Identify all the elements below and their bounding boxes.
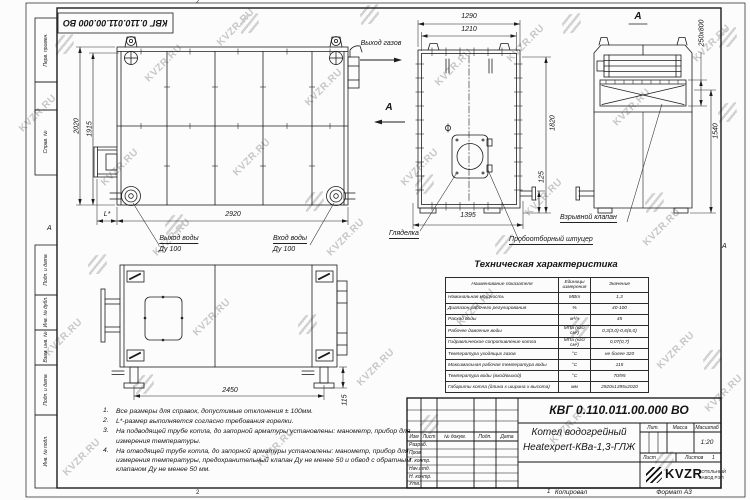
- label-explosion-valve: Взрывной клапан: [560, 214, 617, 223]
- dim-front-width-outer: 1290: [461, 13, 477, 20]
- tech-col-value: Значение: [591, 278, 649, 293]
- tech-table-row: Рабочее давление водыМПа (кгс/см²)0,3(3,…: [446, 326, 649, 338]
- tech-cell-name: Гидравлическое сопротивление котла: [446, 337, 559, 349]
- tech-cell-name: Расход воды: [446, 315, 559, 326]
- company-logo-icon: [646, 467, 662, 483]
- doc-number-main: КВГ 0.110.011.00.000 ВО: [549, 403, 688, 417]
- view-direction-arrow-label: А: [385, 102, 392, 113]
- tech-table-row: Габариты котла (длина х ширина х высота)…: [446, 382, 649, 393]
- note-number: 3.: [103, 427, 116, 445]
- label-water-outlet-dn: Ду 100: [159, 246, 181, 253]
- tech-table-row: Расход водым³/ч45: [446, 315, 649, 326]
- stamp-row-razrab: Разраб.: [409, 442, 427, 448]
- tech-cell-value: 0,3(3,0)-0,6(6,0): [591, 326, 649, 338]
- sheets-value: 1: [712, 455, 715, 461]
- label-sampling-fitting: Пробоотборный штуцер: [509, 236, 593, 245]
- dim-front-depth: 1395: [460, 212, 476, 219]
- company-desc-line1: КОТЕЛЬНЫЙ: [699, 469, 726, 474]
- note-number: 4.: [103, 447, 116, 475]
- label-water-inlet: Вход воды: [273, 235, 307, 244]
- margin-field-inv-podl: Инв. № подл.: [43, 435, 49, 466]
- doc-number-rotated: КВГ 0.110.011.00.000 ВО: [63, 18, 168, 28]
- company-desc-line2: ЗАВОД РЭП: [699, 475, 724, 480]
- tech-table-row: Температура уходящих газов°Сне более 320: [446, 349, 649, 360]
- doc-number-top-stamp: КВГ 0.110.011.00.000 ВО: [58, 13, 173, 33]
- tech-cell-name: Температура уходящих газов: [446, 349, 559, 360]
- stamp-row-tkontr: Т. контр.: [409, 458, 431, 464]
- tech-cell-value: 45: [591, 315, 649, 326]
- tech-cell-name: Габариты котла (длина х ширина х высота): [446, 382, 559, 393]
- tech-table-title: Техническая характеристика: [474, 259, 617, 270]
- dim-flue-opening: 250x800: [699, 20, 706, 47]
- tech-cell-units: °С: [559, 349, 591, 360]
- margin-field-podp-data-1: Подп. и дата: [43, 254, 49, 285]
- stamp-row-nachotd: Нач.отд.: [409, 466, 430, 472]
- stamp-col-podp: Подп.: [478, 434, 491, 440]
- tech-col-name: Наименование показателя: [446, 278, 559, 293]
- tech-col-units: Единицы измерения: [559, 278, 591, 293]
- zone-mark-bottom: 2: [196, 490, 199, 496]
- dim-front-width-inner: 1210: [461, 26, 477, 33]
- tech-table-row: Номинальная мощностьМВт1,3: [446, 293, 649, 304]
- tech-cell-value: 70/95: [591, 371, 649, 382]
- tech-cell-units: %: [559, 304, 591, 315]
- tech-cell-value: 115: [591, 360, 649, 371]
- scale-value: 1:20: [701, 439, 714, 446]
- stamp-row-nkontr: Н. контр.: [409, 474, 432, 480]
- sheet-zone-number: 1: [547, 489, 550, 495]
- dim-side-width: 2920: [225, 211, 241, 218]
- note-item: 2.L*-размер выполняется согласно требова…: [103, 417, 411, 426]
- product-title-line1: Котел водогрейный: [531, 427, 626, 438]
- tech-cell-units: МПа (кгс/см²): [559, 326, 591, 338]
- tech-table-body: Номинальная мощностьМВт1,3Диапазон рабоч…: [446, 293, 649, 393]
- tech-cell-units: МВт: [559, 293, 591, 304]
- lit-label: Лит.: [647, 425, 659, 431]
- stamp-col-izm: Изм: [409, 434, 418, 440]
- margin-field-podp-data-2: Подп. и дата: [43, 374, 49, 405]
- sheets-label: Листов: [685, 455, 703, 461]
- zone-mark-top: 2: [196, 0, 199, 5]
- tech-cell-name: Номинальная мощность: [446, 293, 559, 304]
- zone-mark-right: А: [722, 243, 727, 250]
- dim-front-height: 1820: [550, 115, 557, 131]
- label-gas-outlet: Выход газов: [361, 40, 402, 47]
- dim-view-a-height: 1540: [713, 123, 720, 139]
- product-title-line2: Heatexpert-КВа-1,3-ГЛЖ: [523, 442, 635, 453]
- tech-cell-value: 40-100: [591, 304, 649, 315]
- label-sight-glass: Гляделка: [389, 230, 419, 239]
- stamp-row-utv: Утв.: [409, 481, 420, 487]
- dim-plan-feet-height: 115: [342, 394, 349, 405]
- tech-cell-value: 0,07(0,7): [591, 337, 649, 349]
- margin-field-perv-primen: Перв. примен.: [43, 33, 49, 66]
- tech-cell-units: °С: [559, 360, 591, 371]
- stamp-col-docnum: № докум.: [444, 434, 466, 440]
- tech-cell-units: °С: [559, 371, 591, 382]
- stamp-row-prov: Пров.: [409, 450, 422, 456]
- tech-cell-units: м³/ч: [559, 315, 591, 326]
- note-text: L*-размер выполняется согласно требовани…: [116, 417, 294, 426]
- note-number: 1.: [103, 407, 116, 416]
- stamp-col-data: Дата: [500, 434, 513, 440]
- label-water-inlet-dn: Ду 100: [273, 246, 295, 253]
- note-text: Все размеры для справок, допустимые откл…: [116, 407, 313, 416]
- tech-cell-value: 1,3: [591, 293, 649, 304]
- dim-front-stub: 125: [539, 171, 546, 183]
- dim-side-burner-l: L*: [104, 211, 111, 218]
- tech-cell-name: Диапазон рабочего регулирования: [446, 304, 559, 315]
- company-name: KVZR: [665, 466, 702, 481]
- tech-cell-name: Максимальная рабочая температура воды: [446, 360, 559, 371]
- view-a-title: А: [634, 11, 641, 22]
- note-text: На подводящей трубе котла, до запорной а…: [116, 427, 411, 445]
- margin-field-inv-dubl: Инв. № дубл.: [43, 297, 49, 328]
- tech-cell-units: мм: [559, 382, 591, 393]
- note-item: 4.На отводящей трубе котла, до запорной …: [103, 447, 411, 475]
- notes-list: 1.Все размеры для справок, допустимые от…: [103, 407, 411, 475]
- stamp-col-list: Лист: [423, 434, 436, 440]
- margin-field-sprav: Справ. №: [43, 131, 49, 154]
- tech-cell-name: Температура воды (вход/выход): [446, 371, 559, 382]
- zone-mark-left: А: [47, 225, 52, 232]
- margin-field-vzam-inv: Взам. инв. №: [43, 332, 49, 363]
- dim-plan-feet-span: 2450: [222, 387, 238, 394]
- tech-cell-value: не более 320: [591, 349, 649, 360]
- note-text: На отводящей трубе котла, до запорной ар…: [116, 447, 411, 475]
- sheet-label: Лист: [643, 455, 656, 461]
- tech-table-row: Диапазон рабочего регулирования%40-100: [446, 304, 649, 315]
- tech-cell-name: Рабочее давление воды: [446, 326, 559, 338]
- copied-label: Копировал: [555, 489, 587, 496]
- tech-table: Наименование показателя Единицы измерени…: [445, 277, 649, 393]
- label-water-outlet: Выход воды: [159, 235, 198, 244]
- mass-label: Масса: [673, 425, 688, 431]
- tech-cell-value: 2920х1395х2020: [591, 382, 649, 393]
- tech-table-row: Температура воды (вход/выход)°С70/95: [446, 371, 649, 382]
- format-label: Формат А3: [656, 489, 692, 496]
- dim-side-height-outer: 2020: [74, 118, 81, 134]
- tech-table-row: Максимальная рабочая температура воды°С1…: [446, 360, 649, 371]
- scale-label: Масштаб: [695, 425, 718, 431]
- dim-side-height-inner: 1915: [87, 121, 94, 137]
- drawing-sheet: KVZR.RUKVZR.RUKVZR.RUKVZR.RUKVZR.RUKVZR.…: [0, 0, 750, 500]
- note-number: 2.: [103, 417, 116, 426]
- note-item: 3.На подводящей трубе котла, до запорной…: [103, 427, 411, 445]
- note-item: 1.Все размеры для справок, допустимые от…: [103, 407, 411, 416]
- tech-table-row: Гидравлическое сопротивление котлаМПа (к…: [446, 337, 649, 349]
- tech-cell-units: МПа (кгс/см²): [559, 337, 591, 349]
